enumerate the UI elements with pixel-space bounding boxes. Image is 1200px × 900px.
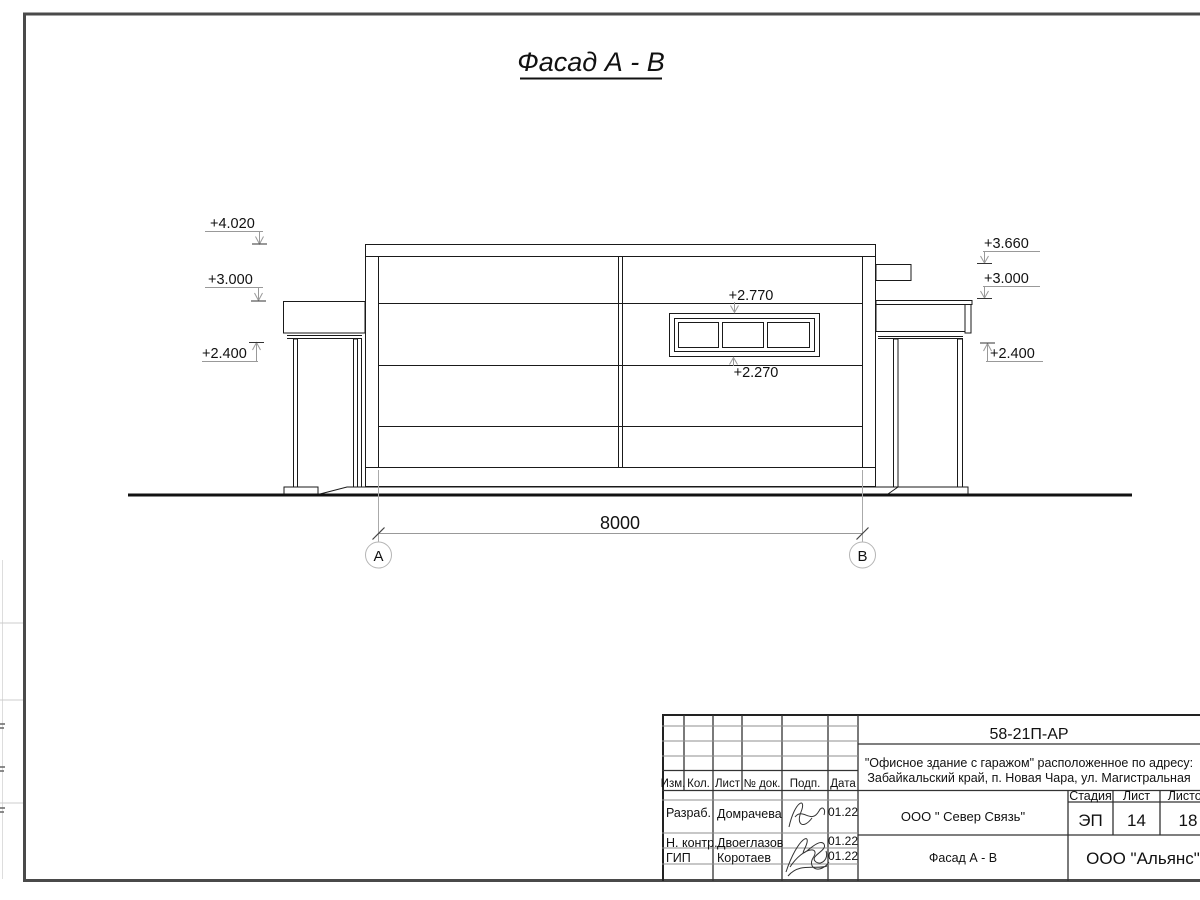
row-name: Коротаев	[717, 851, 771, 865]
signature-rows: Разраб. Домрачева 01.22 Н. контр. Двоегл…	[666, 805, 858, 865]
elevation-marker-right-2400: +2.400	[980, 343, 1043, 362]
col-izm: Изм.	[661, 778, 686, 790]
elevation-marker-left-4020: +4.020	[205, 216, 267, 244]
row-name: Двоеглазов	[717, 836, 784, 850]
axis-bubble-a: А	[366, 542, 392, 568]
company-name: ООО "Альянс"	[1086, 849, 1200, 868]
title-block: Изм. Кол. Лист № док. Подп. Дата Разраб.…	[661, 714, 1200, 881]
row-role: Разраб.	[666, 806, 711, 820]
svg-text:+3.000: +3.000	[208, 272, 253, 288]
svg-text:+2.270: +2.270	[734, 365, 779, 381]
building-base-slab	[320, 487, 946, 494]
row-date: 01.22	[828, 849, 858, 863]
left-canopy-post	[294, 339, 298, 487]
facade-drawing-canvas: Фасад А - В	[0, 0, 1200, 900]
row-date: 01.22	[828, 834, 858, 848]
col-kol: Кол.	[687, 778, 710, 790]
col-podp: Подп.	[790, 778, 821, 790]
row-role: ГИП	[666, 851, 691, 865]
svg-text:+3.000: +3.000	[984, 271, 1029, 287]
right-wall-projection	[876, 265, 911, 281]
svg-text:А: А	[373, 548, 383, 565]
right-canopy	[876, 301, 972, 488]
ribbon-window	[670, 314, 820, 357]
svg-text:+2.770: +2.770	[729, 288, 774, 304]
signature-korotaev	[786, 839, 829, 876]
title-block-header: Изм. Кол. Лист № док. Подп. Дата	[661, 778, 857, 790]
col-doc: № док.	[744, 778, 781, 790]
right-canopy-post	[894, 339, 899, 487]
drawing-name: Фасад А - В	[929, 851, 997, 865]
wall-body	[366, 257, 876, 487]
left-canopy	[284, 302, 366, 488]
elevation-marker-right-3660: +3.660	[977, 236, 1040, 264]
drawing-sheet: Фасад А - В	[0, 0, 1200, 900]
svg-text:+4.020: +4.020	[210, 216, 255, 232]
parapet-band	[366, 245, 876, 257]
project-address-2: Забайкальский край, п. Новая Чара, ул. М…	[867, 771, 1190, 785]
dimension-value: 8000	[600, 513, 640, 533]
doc-code: 58-21П-АР	[989, 726, 1068, 743]
signature-domracheva	[789, 803, 825, 827]
stage-label: Стадия	[1069, 789, 1112, 803]
page-title: Фасад А - В	[517, 47, 664, 77]
elevation-marker-right-3000: +3.000	[977, 271, 1040, 299]
row-role: Н. контр.	[666, 836, 718, 850]
elevation-marker-left-3000: +3.000	[205, 272, 266, 301]
project-address-1: "Офисное здание с гаражом" расположенное…	[865, 756, 1193, 770]
axis-bubble-b: В	[850, 542, 876, 568]
right-canopy-post	[958, 339, 963, 487]
row-name: Домрачева	[717, 807, 782, 821]
sheets-label: Листов	[1168, 789, 1200, 803]
elevation-marker-left-2400: +2.400	[202, 343, 264, 363]
col-data: Дата	[830, 778, 856, 790]
org-name: ООО " Север Связь"	[901, 809, 1026, 824]
row-date: 01.22	[828, 805, 858, 819]
stage-value: ЭП	[1078, 811, 1102, 830]
sheets-value: 18	[1179, 811, 1198, 830]
right-canopy-base	[888, 487, 968, 494]
sheet-value: 14	[1127, 811, 1146, 830]
left-canopy-base	[284, 487, 318, 494]
svg-text:+3.660: +3.660	[984, 236, 1029, 252]
drawing-title: Фасад А - В	[517, 47, 664, 79]
svg-text:+2.400: +2.400	[202, 346, 247, 362]
col-list: Лист	[715, 778, 741, 790]
left-margin-artifacts	[0, 560, 23, 879]
building-facade	[284, 245, 973, 495]
svg-text:+2.400: +2.400	[990, 346, 1035, 362]
left-canopy-post	[354, 339, 358, 487]
sheet-label: Лист	[1123, 789, 1150, 803]
svg-text:В: В	[857, 548, 867, 565]
signature-scribbles	[786, 803, 829, 876]
